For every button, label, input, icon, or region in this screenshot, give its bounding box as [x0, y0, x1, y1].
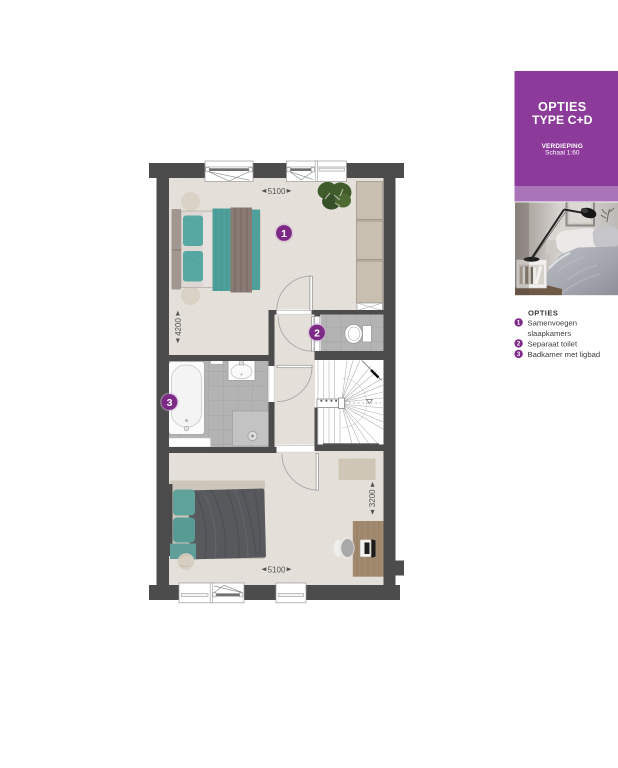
svg-text:5100: 5100: [268, 565, 286, 574]
svg-text:OPTIES: OPTIES: [538, 100, 587, 114]
svg-text:TYPE C+D: TYPE C+D: [532, 113, 593, 127]
svg-text:1: 1: [281, 228, 287, 240]
svg-text:Separaat toilet: Separaat toilet: [528, 340, 578, 349]
svg-text:3200: 3200: [368, 489, 377, 507]
svg-text:Badkamer met ligbad: Badkamer met ligbad: [528, 350, 601, 359]
svg-text:3: 3: [167, 397, 173, 409]
svg-text:Schaal 1:60: Schaal 1:60: [545, 150, 580, 157]
svg-text:OPTIES: OPTIES: [528, 308, 558, 317]
svg-text:slaapkamers: slaapkamers: [528, 329, 572, 338]
svg-text:2: 2: [314, 327, 320, 339]
svg-text:5100: 5100: [268, 187, 286, 196]
svg-text:4200: 4200: [174, 318, 183, 336]
svg-text:Samenvoegen: Samenvoegen: [528, 319, 578, 328]
